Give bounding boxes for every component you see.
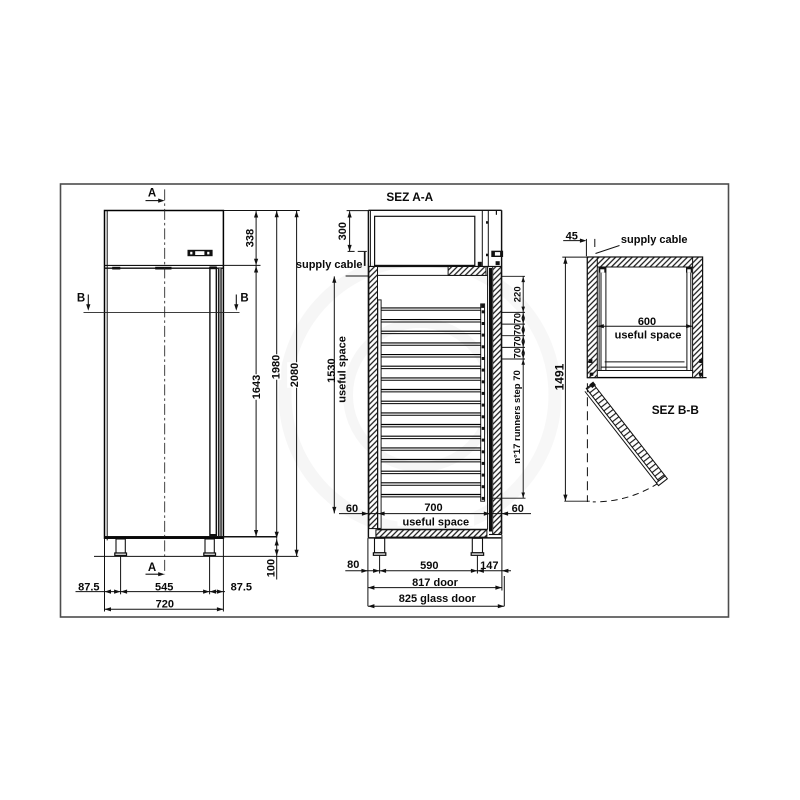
svg-text:useful space: useful space xyxy=(336,336,348,403)
svg-text:825 glass door: 825 glass door xyxy=(399,593,477,605)
svg-text:A: A xyxy=(148,188,156,200)
svg-text:70: 70 xyxy=(513,348,524,359)
svg-text:70: 70 xyxy=(513,313,524,324)
svg-text:B: B xyxy=(240,292,248,304)
svg-text:100: 100 xyxy=(265,559,277,577)
svg-text:60: 60 xyxy=(512,503,524,515)
svg-text:supply cable: supply cable xyxy=(296,259,363,271)
svg-text:70: 70 xyxy=(513,325,524,336)
svg-text:1491: 1491 xyxy=(553,363,567,390)
svg-text:80: 80 xyxy=(347,559,359,571)
svg-text:817 door: 817 door xyxy=(412,577,459,589)
svg-text:1980: 1980 xyxy=(270,355,282,379)
svg-text:720: 720 xyxy=(156,599,174,611)
svg-text:2080: 2080 xyxy=(289,363,301,387)
svg-text:useful space: useful space xyxy=(402,516,469,528)
svg-text:B: B xyxy=(77,292,85,304)
svg-text:700: 700 xyxy=(424,502,442,514)
svg-text:SEZ A-A: SEZ A-A xyxy=(386,190,433,204)
svg-text:useful space: useful space xyxy=(615,329,682,341)
svg-text:338: 338 xyxy=(244,229,256,247)
svg-text:n°17 runners step 70: n°17 runners step 70 xyxy=(512,370,523,464)
svg-text:70: 70 xyxy=(513,336,524,347)
svg-text:600: 600 xyxy=(638,316,656,328)
svg-text:300: 300 xyxy=(337,222,349,240)
svg-text:60: 60 xyxy=(346,503,358,515)
svg-text:590: 590 xyxy=(420,560,438,572)
svg-text:A: A xyxy=(148,562,156,574)
svg-text:545: 545 xyxy=(155,581,173,593)
svg-text:87.5: 87.5 xyxy=(78,581,99,593)
svg-text:147: 147 xyxy=(480,560,498,572)
svg-text:87.5: 87.5 xyxy=(231,581,252,593)
svg-text:220: 220 xyxy=(512,286,523,302)
svg-text:SEZ B-B: SEZ B-B xyxy=(652,403,699,417)
svg-text:1643: 1643 xyxy=(251,375,263,399)
svg-text:supply cable: supply cable xyxy=(621,234,688,246)
